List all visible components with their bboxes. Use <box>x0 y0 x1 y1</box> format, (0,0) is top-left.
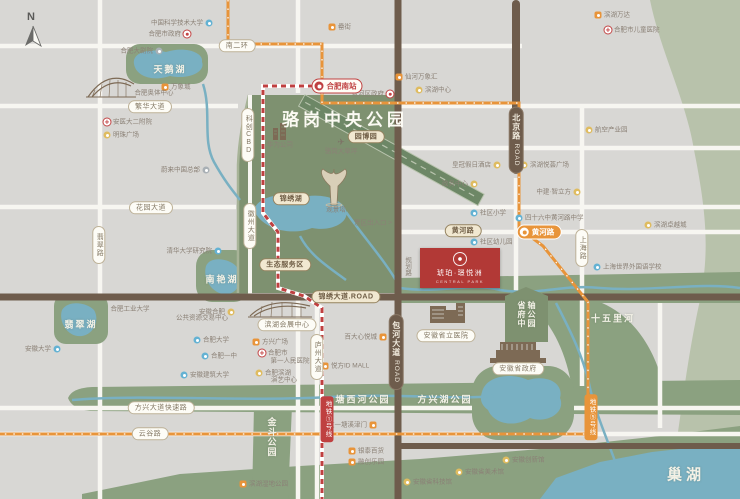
poi-label: 皇冠假日酒店 <box>452 161 491 168</box>
landmark-icon <box>228 309 235 316</box>
poi-label: 四十六中黄河路中学 <box>525 214 584 221</box>
poi-label: 景区出入口 > <box>354 219 392 226</box>
plane-icon <box>338 139 345 146</box>
area-label-fangxinghu-park: 方兴湖公园 <box>417 393 472 406</box>
road-pill-text-en: ROAD <box>392 360 400 383</box>
poi-label: 悦方ID MALL <box>331 362 369 369</box>
park-title: 骆岗中央公园 <box>282 106 408 131</box>
poi-label: 合肥工业大学 <box>111 305 150 312</box>
road-pill-text: 上海路 <box>579 236 586 260</box>
poi-label: 合肥一中 <box>211 352 237 359</box>
poi-label: 方兴广场 <box>262 338 288 345</box>
place-icon <box>156 48 163 55</box>
road-pill-text-en: ROAD <box>512 144 520 167</box>
road-pill-text: 安徽省立医院 <box>424 332 469 339</box>
road-pill-text: 锦绣湖 <box>280 195 303 202</box>
poi-label: 安徽大学 <box>25 345 51 352</box>
poi-label: 中国科学技术大学 <box>151 19 203 26</box>
poi-label: 合肥大学 <box>203 336 229 343</box>
school-icon <box>215 248 222 255</box>
road-pill-text: 北京路 <box>512 114 521 141</box>
area-label-chaohu: 巢湖 <box>667 464 705 485</box>
poi-label: 清华大学研究院 <box>167 247 213 254</box>
school-icon <box>471 210 478 217</box>
road-pill-binhu-expo-center: 滨湖会展中心 <box>258 318 317 331</box>
hospital-icon <box>604 26 613 35</box>
landmark-icon <box>404 479 411 486</box>
poi-label: 政务中心 <box>442 180 468 187</box>
landmark-icon <box>471 181 478 188</box>
road-pill-huanghe-road-pill: 黄河路 <box>445 224 482 237</box>
school-icon <box>181 372 188 379</box>
poi-label: 观景塔 <box>326 206 346 213</box>
road-pill-fangxing-expressway: 方兴大道快速路 <box>128 401 195 414</box>
landmark-icon <box>416 87 423 94</box>
road-pill-fanhua-avenue: 繁华大道 <box>128 100 172 113</box>
road-pill-text: 云谷路 <box>139 430 162 437</box>
road-pill-text: 科创CBD <box>245 115 252 155</box>
shopping-icon <box>329 24 336 31</box>
metro-badge-text: 地铁⑤号线 <box>588 398 595 436</box>
school-icon <box>206 20 213 27</box>
school-icon <box>194 337 201 344</box>
poi-label: 百大心悦城 <box>345 333 378 340</box>
poi-label: 滨湖中心 <box>425 86 451 93</box>
school-icon <box>54 346 61 353</box>
poi-label: 安徽省美术馆 <box>465 468 504 475</box>
shopping-icon <box>253 339 260 346</box>
poi-label: 蔚来中国总部 <box>161 166 200 173</box>
shopping-icon <box>595 12 602 19</box>
project-name: 琥珀·璟悦洲 <box>437 268 483 278</box>
area-label-nanyanhu: 南艳湖 <box>205 273 238 286</box>
poi-label: 滨湖悦荟广场 <box>530 161 569 168</box>
poi-label: 合肥市 <box>268 349 288 356</box>
poi-label: 滨湖湿地公园 <box>249 480 288 487</box>
road-pill-text: 滨湖会展中心 <box>265 321 310 328</box>
poi-label: 合肥奥体中心 <box>135 89 174 96</box>
poi-label: 演艺中心 <box>271 376 297 383</box>
poi-label: 仙河万象汇 <box>405 73 438 80</box>
poi-label: 上海世界外国语学校 <box>603 263 662 270</box>
poi-label: 滨湖卓越城 <box>654 221 687 228</box>
landmark-icon <box>456 469 463 476</box>
road-pill-text: 包河大道 <box>392 321 401 357</box>
shopping-icon <box>240 481 247 488</box>
road-pill-text: 黄河路 <box>452 227 475 234</box>
area-label-feicuihu: 翡翠湖 <box>64 318 97 331</box>
road-pill-huayuan-avenue: 花园大道 <box>129 201 173 214</box>
compass-north-arrow: N <box>18 8 48 54</box>
poi-label: 华为公司 <box>267 141 293 148</box>
metro-badge-huanghe-road-station: 黄河路 <box>517 225 562 240</box>
area-label-tianehu: 天鹅湖 <box>153 63 186 76</box>
metro-badge-text: 合肥南站 <box>327 81 357 92</box>
area-label-jindou-park: 金斗公园 <box>266 417 279 457</box>
place-icon <box>203 167 210 174</box>
poi-label: 银泰百货 <box>358 447 384 454</box>
compass-n-letter: N <box>27 11 35 23</box>
school-icon <box>594 264 601 271</box>
school-icon <box>471 239 478 246</box>
road-pill-text: 方兴大道快速路 <box>135 404 188 411</box>
poi-label: 安医大二附院 <box>113 118 152 125</box>
shopping-icon <box>370 422 377 429</box>
project-marker: 琥珀·璟悦洲 CENTRAL PARK <box>420 248 500 288</box>
road-pill-anhui-provincial-hospital: 安徽省立医院 <box>417 329 476 342</box>
school-icon <box>202 353 209 360</box>
area-label-shengfu-axis-park: 省府中轴公园 <box>516 301 536 333</box>
metro-icon <box>520 228 529 237</box>
shopping-icon <box>396 74 403 81</box>
poi-label: 合肥市儿童医院 <box>614 26 660 33</box>
road-pill-text: 花园大道 <box>136 204 166 211</box>
road-pill-text: 安徽省政府 <box>499 365 537 372</box>
poi-label: 安徽创新馆 <box>512 456 545 463</box>
landmark-icon <box>494 162 501 169</box>
poi-label: 社区幼儿园 <box>480 238 513 245</box>
shopping-icon <box>380 334 387 341</box>
road-pill-text: 锦绣大道.ROAD <box>318 293 373 300</box>
poi-label: 航空产业园 <box>595 126 628 133</box>
road-pill-yuanboyuan: 园博园 <box>348 130 385 143</box>
poi-label: 万象城 <box>171 83 191 90</box>
shopping-icon <box>349 448 356 455</box>
metro-badge-text: 地铁①号线 <box>324 400 331 438</box>
metro-icon <box>315 82 324 91</box>
shopping-icon <box>349 459 356 466</box>
poi-label: 合肥大剧院 <box>121 47 154 54</box>
landmark-icon <box>503 457 510 464</box>
metro-badge-hefei-south-station: 合肥南站 <box>312 79 363 94</box>
project-logo-icon <box>453 252 467 266</box>
poi-label: 规划路 <box>403 256 410 276</box>
poi-label: 合肥市政府 <box>149 30 182 37</box>
government-icon <box>386 90 395 99</box>
road-pill-text: 徽州大道 <box>247 210 254 242</box>
road-pill-anhui-gov: 安徽省政府 <box>492 362 544 375</box>
landmark-icon <box>645 222 652 229</box>
hospital-icon <box>103 118 112 127</box>
road-pill-beijing-road: 北京路ROAD <box>509 107 524 174</box>
road-pill-yungu-road: 云谷路 <box>132 427 169 440</box>
poi-label: 文一塘溪津门 <box>328 421 367 428</box>
hospital-icon <box>258 349 267 358</box>
road-pill-kechuang-cbd: 科创CBD <box>241 108 254 162</box>
poi-label: 明珠广场 <box>113 131 139 138</box>
road-pill-text: 繁华大道 <box>135 103 165 110</box>
poi-label: 骆岗大草坪 <box>325 148 358 155</box>
road-pill-text: 南二环 <box>226 42 249 49</box>
road-pill-jinxiu-avenue: 锦绣大道.ROAD <box>311 290 380 303</box>
road-pill-text: 翡翠路 <box>96 233 103 257</box>
metro-badge-metro-line-5-badge: 地铁⑤号线 <box>585 394 598 440</box>
road-pill-nanerhuan: 南二环 <box>219 39 256 52</box>
poi-label: 公共资源交易中心 <box>176 314 228 321</box>
road-pill-huizhou-avenue: 徽州大道 <box>243 203 256 249</box>
metro-badge-text: 黄河路 <box>532 227 555 238</box>
road-pill-shanghai-road: 上海路 <box>575 229 588 267</box>
landmark-icon <box>586 127 593 134</box>
poi-label: 融创乐园 <box>358 458 384 465</box>
poi-label: 安徽建筑大学 <box>190 371 229 378</box>
landmark-icon <box>256 370 263 377</box>
road-pill-luzhou-avenue: 庐州大道 <box>310 334 323 380</box>
project-tagline: CENTRAL PARK <box>436 279 484 284</box>
school-icon <box>516 215 523 222</box>
poi-label: 第一人民医院 <box>271 357 310 364</box>
road-pill-feicui-road: 翡翠路 <box>92 226 105 264</box>
road-pill-text: 庐州大道 <box>314 341 321 373</box>
area-label-tangxihe-park: 塘西河公园 <box>335 393 390 406</box>
area-label-shiwulihe: 十五里河 <box>591 312 635 325</box>
poi-label: 社区小学 <box>480 209 506 216</box>
map-labels-layer: 南二环繁华大道花园大道翡翠路方兴大道快速路云谷路科创CBD徽州大道上海路庐州大道… <box>0 0 740 499</box>
map-canvas: N 骆岗中央公园 琥珀·璟悦洲 CENTRAL PARK 南二环繁华大道花园大道… <box>0 0 740 499</box>
poi-label: 安徽省科技馆 <box>413 478 452 485</box>
road-pill-text: 园博园 <box>355 133 378 140</box>
road-pill-baohe-avenue: 包河大道ROAD <box>389 314 404 390</box>
poi-label: 中建·智立方 <box>536 188 571 195</box>
poi-label: 滨湖万达 <box>604 11 630 18</box>
poi-label: 罍街 <box>338 23 351 30</box>
road-pill-text: 生态服务区 <box>266 261 304 268</box>
road-pill-jinxiu-lake-pill: 锦绣湖 <box>273 192 310 205</box>
landmark-icon <box>104 132 111 139</box>
metro-badge-metro-line-1-badge: 地铁①号线 <box>321 396 334 442</box>
government-icon <box>183 30 192 39</box>
landmark-icon <box>574 189 581 196</box>
road-pill-eco-service-area: 生态服务区 <box>259 258 311 271</box>
